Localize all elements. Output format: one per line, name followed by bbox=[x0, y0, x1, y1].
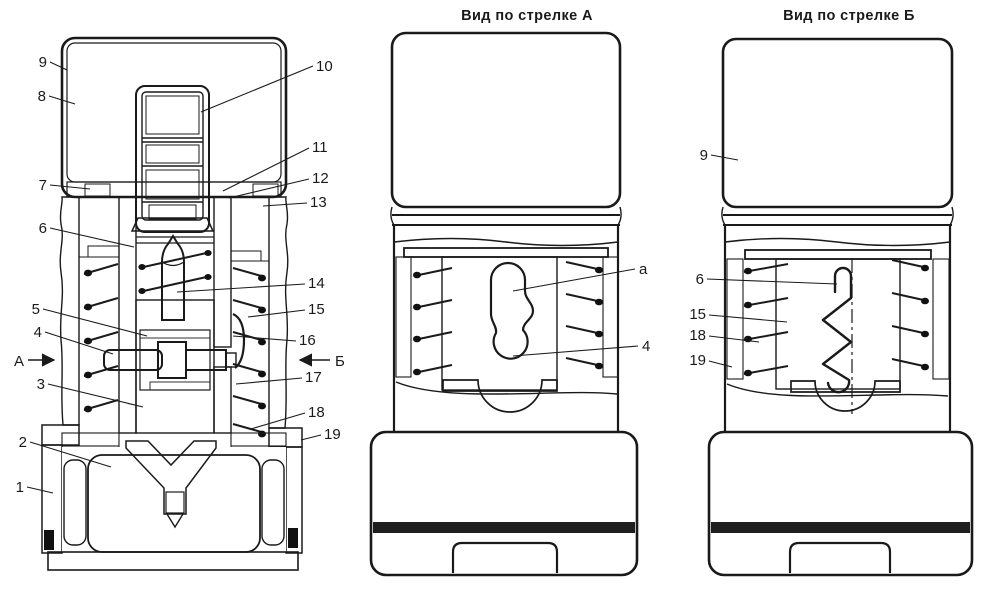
base-housing bbox=[42, 425, 302, 570]
view-a-body bbox=[394, 225, 618, 432]
firing-pin bbox=[162, 236, 184, 320]
view-b-title: Вид по стрелке Б bbox=[783, 8, 915, 24]
diagram-svg: 9 8 7 6 5 4 3 2 1 А 10 11 12 13 14 15 16… bbox=[0, 0, 1000, 615]
callout-label-8: 8 bbox=[38, 88, 46, 105]
callout-label-a: а bbox=[639, 261, 648, 278]
left-spring bbox=[84, 264, 118, 412]
callout-label-6: 6 bbox=[39, 220, 47, 237]
view-a-title: Вид по стрелке А bbox=[461, 8, 593, 24]
callout-label-6-view-b: 6 bbox=[696, 271, 704, 288]
main-section-view: 9 8 7 6 5 4 3 2 1 А 10 11 12 13 14 15 16… bbox=[14, 38, 345, 570]
callout-label-9: 9 bbox=[39, 54, 47, 71]
callout-label-15-view-b: 15 bbox=[689, 306, 706, 323]
view-b-drawing: Вид по стрелке Б bbox=[689, 8, 972, 575]
figure-canvas: 9 8 7 6 5 4 3 2 1 А 10 11 12 13 14 15 16… bbox=[0, 0, 1000, 615]
view-b-cap bbox=[723, 39, 952, 207]
view-a-base bbox=[371, 432, 637, 575]
callout-label-18-view-b: 18 bbox=[689, 327, 706, 344]
callout-label-15: 15 bbox=[308, 301, 325, 318]
callout-label-5: 5 bbox=[32, 301, 40, 318]
keyhole-slot bbox=[491, 263, 533, 359]
callout-label-9-view-b: 9 bbox=[700, 147, 708, 164]
callout-label-4: 4 bbox=[34, 324, 42, 341]
cap-cross-section bbox=[62, 38, 286, 197]
callout-label-18: 18 bbox=[308, 404, 325, 421]
right-spring bbox=[233, 268, 266, 437]
view-b-body bbox=[725, 225, 950, 432]
view-arrow-b-label: Б bbox=[335, 353, 345, 370]
striker-spring bbox=[138, 250, 211, 294]
detonator-assembly bbox=[132, 86, 213, 232]
callout-label-16: 16 bbox=[299, 332, 316, 349]
callout-label-3: 3 bbox=[37, 376, 45, 393]
safety-wire bbox=[823, 268, 851, 392]
callout-label-4-view-a: 4 bbox=[642, 338, 650, 355]
safety-clip bbox=[233, 314, 244, 368]
view-a-drawing: Вид по стрелке А bbox=[371, 8, 650, 575]
callout-label-13: 13 bbox=[310, 194, 327, 211]
callout-label-2: 2 bbox=[19, 434, 27, 451]
callout-label-7: 7 bbox=[39, 177, 47, 194]
view-b-base bbox=[709, 432, 972, 575]
callout-label-11: 11 bbox=[312, 139, 328, 156]
view-b-springs bbox=[744, 260, 929, 376]
callout-label-19-view-b: 19 bbox=[689, 352, 706, 369]
callout-label-10: 10 bbox=[316, 58, 333, 75]
upper-chambers bbox=[79, 197, 269, 261]
callout-label-12: 12 bbox=[312, 170, 329, 187]
view-arrow-a-label: А bbox=[14, 353, 24, 370]
callout-label-17: 17 bbox=[305, 369, 322, 386]
view-a-cap bbox=[392, 33, 620, 207]
callout-label-1: 1 bbox=[16, 479, 24, 496]
callout-label-19: 19 bbox=[324, 426, 341, 443]
callout-label-14: 14 bbox=[308, 275, 325, 292]
